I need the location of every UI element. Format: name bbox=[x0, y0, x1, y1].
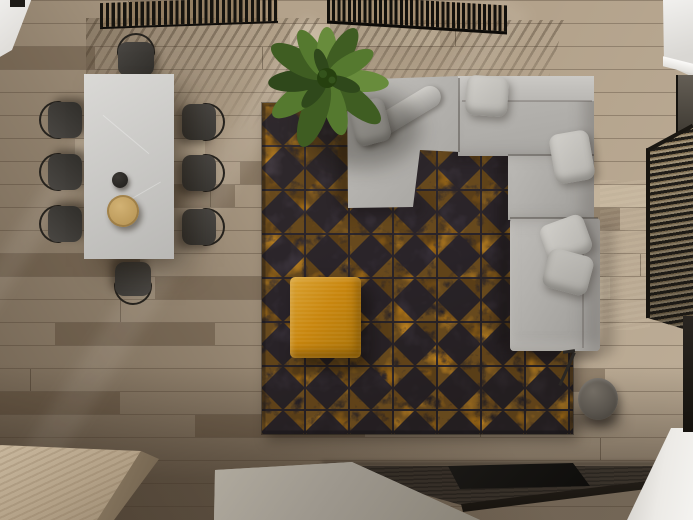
chair-seat bbox=[48, 154, 82, 190]
dining-table bbox=[84, 74, 174, 259]
marble-vein bbox=[103, 115, 150, 154]
dining-chair-left-2 bbox=[44, 149, 86, 195]
dining-chair-right-3 bbox=[178, 204, 220, 250]
chair-seat bbox=[48, 206, 82, 242]
chair-seat bbox=[115, 262, 151, 296]
chair-seat bbox=[48, 102, 82, 138]
chair-seat bbox=[182, 209, 216, 245]
chair-seat bbox=[182, 155, 216, 191]
serving-plate bbox=[107, 195, 139, 227]
sofa-seam bbox=[458, 78, 460, 152]
dining-chair-left-1 bbox=[44, 97, 86, 143]
living-room-render bbox=[0, 0, 693, 520]
blind-frame bbox=[646, 148, 650, 318]
wall-corner-detail bbox=[10, 0, 25, 7]
blind-light-pattern bbox=[600, 180, 650, 330]
dining-chair-right-1 bbox=[178, 99, 220, 145]
chair-seat bbox=[182, 104, 216, 140]
floor-lamp bbox=[578, 378, 618, 420]
sofa-pillow-1 bbox=[465, 75, 510, 118]
ottoman-pouf bbox=[290, 277, 361, 358]
black-teapot bbox=[112, 172, 128, 188]
sofa-seam bbox=[510, 217, 598, 219]
window-blinds bbox=[646, 124, 693, 334]
dining-chair-right-2 bbox=[178, 150, 220, 196]
dark-frame-strip bbox=[683, 316, 693, 432]
dining-chair-left-3 bbox=[44, 201, 86, 247]
dining-chair-bottom bbox=[110, 258, 156, 300]
chair-seat bbox=[118, 42, 154, 76]
sofa-pillow-2 bbox=[548, 129, 596, 185]
